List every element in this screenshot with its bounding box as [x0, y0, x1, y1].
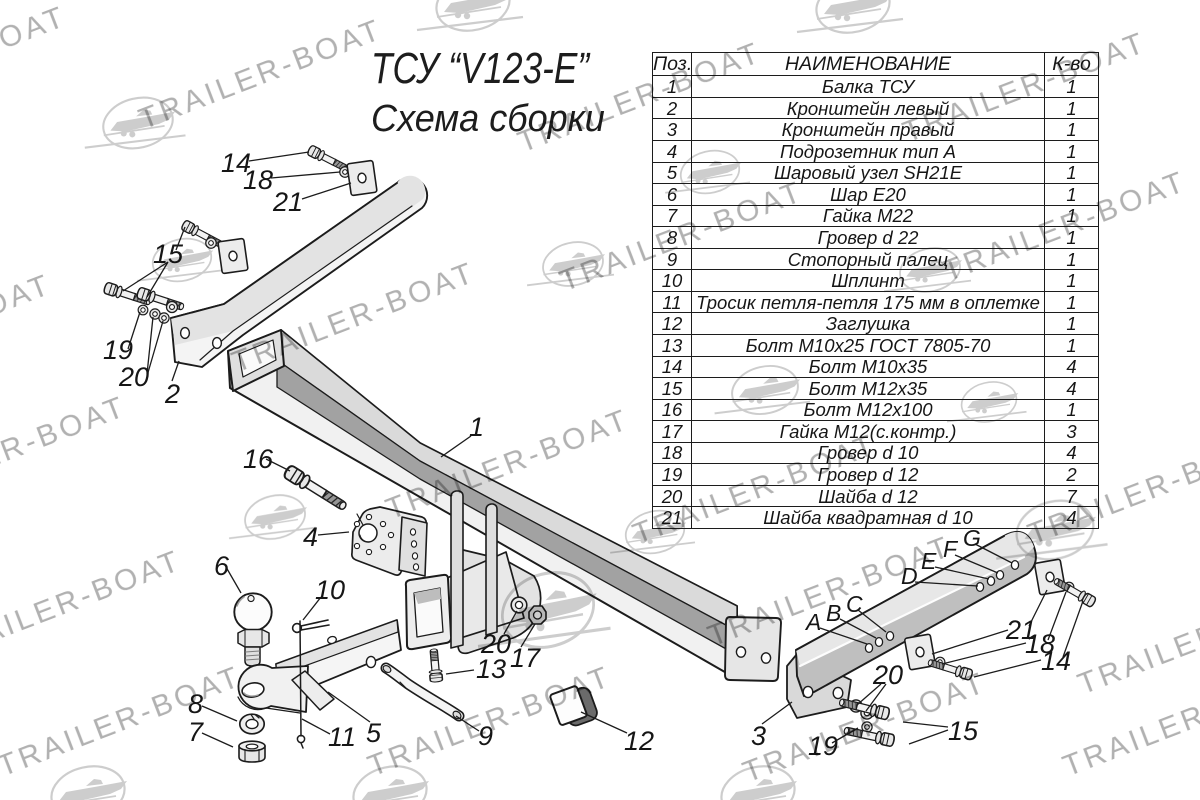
- svg-text:G: G: [963, 525, 981, 551]
- svg-text:6: 6: [214, 551, 230, 581]
- svg-text:5: 5: [366, 718, 382, 748]
- svg-text:2: 2: [164, 379, 180, 409]
- svg-text:3: 3: [751, 721, 766, 751]
- svg-text:4: 4: [303, 522, 318, 552]
- svg-text:1: 1: [469, 412, 484, 442]
- svg-text:20: 20: [118, 362, 149, 392]
- svg-text:20: 20: [872, 660, 903, 690]
- svg-text:18: 18: [243, 165, 273, 195]
- svg-text:13: 13: [476, 654, 506, 684]
- svg-text:11: 11: [328, 722, 356, 752]
- svg-text:15: 15: [948, 716, 979, 746]
- svg-text:21: 21: [272, 187, 303, 217]
- svg-text:16: 16: [243, 444, 274, 474]
- svg-text:7: 7: [188, 717, 204, 747]
- svg-text:14: 14: [1041, 646, 1071, 676]
- svg-text:12: 12: [624, 726, 654, 756]
- svg-text:19: 19: [103, 335, 133, 365]
- svg-text:10: 10: [315, 575, 345, 605]
